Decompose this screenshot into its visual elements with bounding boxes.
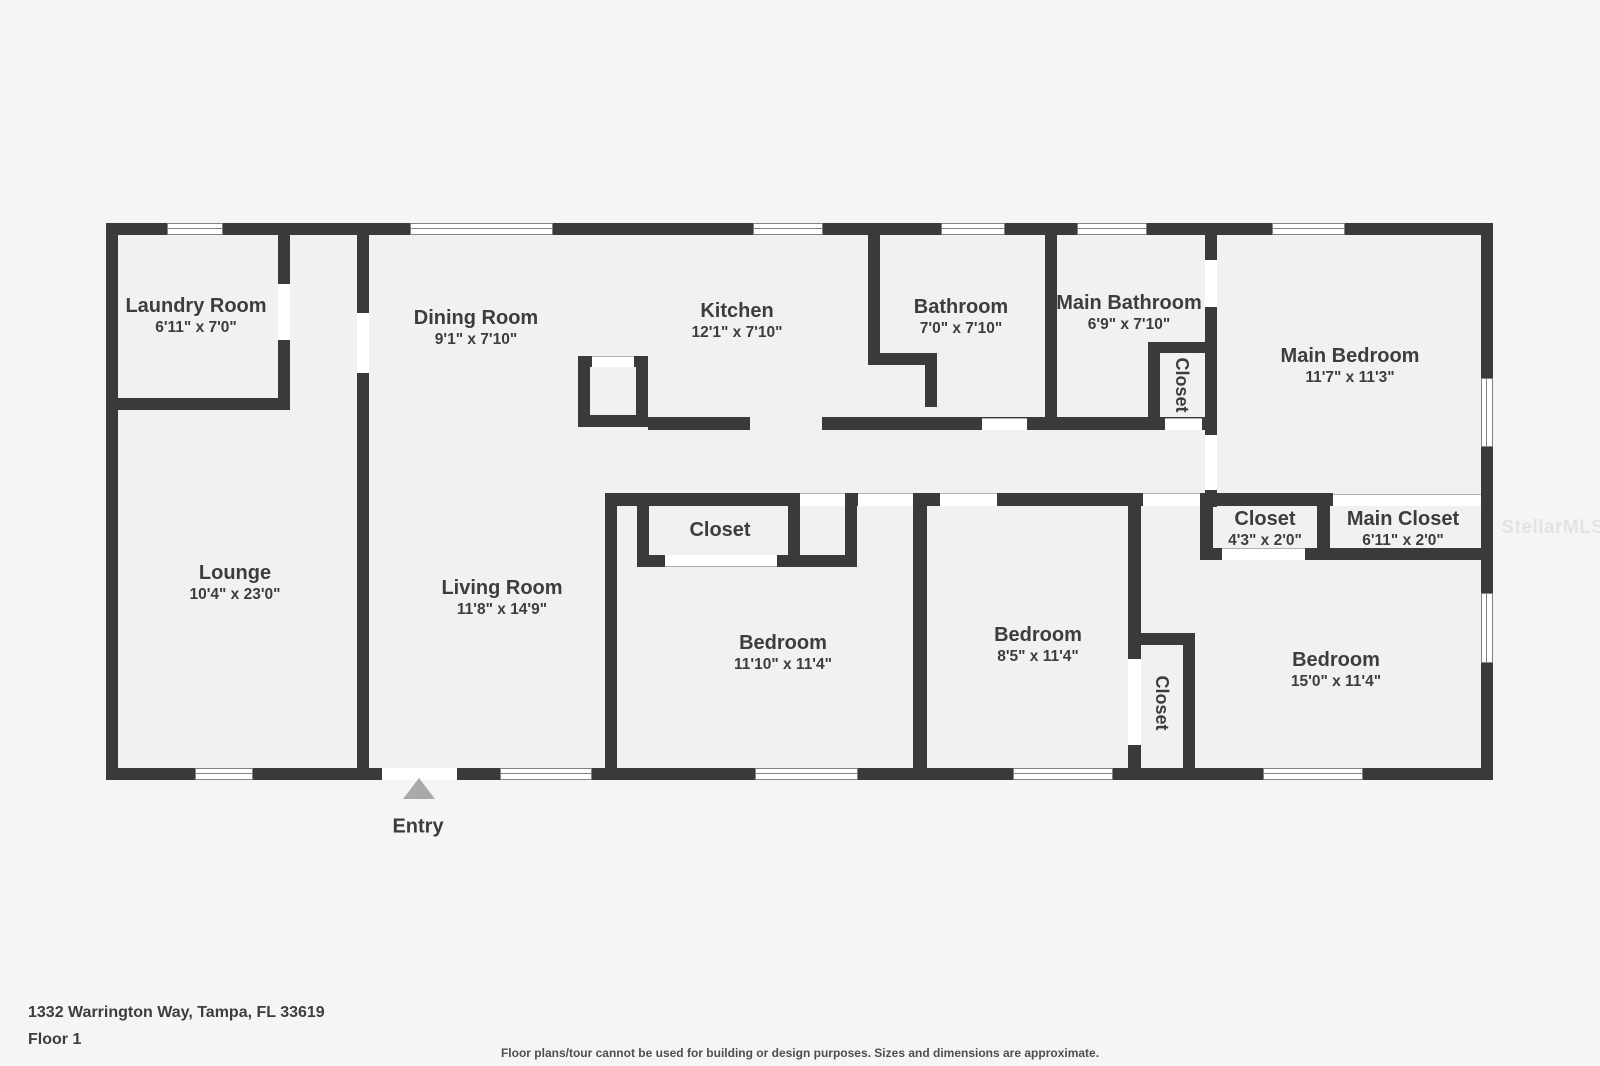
room-name: Main Closet <box>1347 507 1459 531</box>
window-icon <box>1077 223 1147 235</box>
room-label-bedroom1: Bedroom 11'10" x 11'4" <box>734 631 832 675</box>
wall <box>1148 342 1160 429</box>
room-label-lounge: Lounge 10'4" x 23'0" <box>189 561 280 605</box>
room-dims: 4'3" x 2'0" <box>1228 531 1302 551</box>
room-label-living-room: Living Room 11'8" x 14'9" <box>441 576 562 620</box>
room-label-bathroom: Bathroom 7'0" x 7'10" <box>914 295 1008 339</box>
entry-label: Entry <box>392 816 443 839</box>
room-label-closet-bedroom2: Closet <box>1150 675 1174 730</box>
door-opening <box>1205 435 1217 490</box>
wall <box>868 223 880 365</box>
window-icon <box>500 768 592 780</box>
room-dims: 15'0" x 11'4" <box>1291 672 1381 692</box>
door-opening <box>858 493 913 506</box>
room-name: Living Room <box>441 576 562 600</box>
room-name: Main Bathroom <box>1056 291 1202 315</box>
door-opening <box>1205 260 1217 307</box>
room-dims: 11'8" x 14'9" <box>441 600 562 620</box>
wall <box>925 353 937 407</box>
room-name: Main Bedroom <box>1281 344 1420 368</box>
wall <box>997 493 1143 506</box>
window-icon <box>753 223 823 235</box>
door-opening <box>278 284 290 340</box>
window-icon <box>1481 593 1493 663</box>
wall <box>822 417 868 430</box>
room-dims: 12'1" x 7'10" <box>691 323 782 343</box>
room-label-dining: Dining Room 9'1" x 7'10" <box>414 306 538 350</box>
door-opening <box>1165 418 1202 430</box>
room-dims: 7'0" x 7'10" <box>914 319 1008 339</box>
window-icon <box>410 223 553 235</box>
floor-number-label: Floor 1 <box>28 1031 81 1049</box>
room-name: Laundry Room <box>125 294 266 318</box>
room-label-bedroom3: Bedroom 15'0" x 11'4" <box>1291 648 1381 692</box>
room-name: Bedroom <box>994 623 1082 647</box>
window-icon <box>1013 768 1113 780</box>
room-label-laundry: Laundry Room 6'11" x 7'0" <box>125 294 266 338</box>
room-label-closet-main-bathroom: Closet <box>1170 357 1194 412</box>
room-name: Dining Room <box>414 306 538 330</box>
window-icon <box>941 223 1005 235</box>
room-name: Bedroom <box>1291 648 1381 672</box>
address-text: 1332 Warrington Way, Tampa, FL 33619 <box>28 1004 325 1022</box>
room-name: Bathroom <box>914 295 1008 319</box>
wall <box>845 493 857 567</box>
room-dims: 8'5" x 11'4" <box>994 647 1082 667</box>
wall <box>913 506 927 768</box>
room-dims: 11'10" x 11'4" <box>734 655 832 675</box>
room-dims: 10'4" x 23'0" <box>189 585 280 605</box>
wall <box>1183 633 1195 780</box>
wall <box>605 493 617 780</box>
room-label-main-closet: Main Closet 6'11" x 2'0" <box>1347 507 1459 551</box>
door-opening <box>592 356 634 367</box>
wall <box>106 398 290 410</box>
disclaimer-text: Floor plans/tour cannot be used for buil… <box>501 1046 1099 1060</box>
door-opening <box>1128 659 1141 745</box>
wall <box>1481 223 1493 780</box>
room-name: Closet <box>1150 675 1174 730</box>
door-opening <box>665 555 777 567</box>
room-label-closet-small: Closet 4'3" x 2'0" <box>1228 507 1302 551</box>
room-label-main-bedroom: Main Bedroom 11'7" x 11'3" <box>1281 344 1420 388</box>
wall <box>357 223 369 780</box>
room-dims: 9'1" x 7'10" <box>414 330 538 350</box>
room-dims: 6'9" x 7'10" <box>1056 315 1202 335</box>
window-icon <box>195 768 253 780</box>
door-opening <box>1143 493 1200 506</box>
room-dims: 6'11" x 7'0" <box>125 318 266 338</box>
room-name: Closet <box>689 518 750 542</box>
wall <box>578 415 648 427</box>
door-opening <box>357 313 369 373</box>
door-opening <box>800 493 845 506</box>
window-icon <box>167 223 223 235</box>
wall <box>605 493 800 506</box>
room-dims: 6'11" x 2'0" <box>1347 531 1459 551</box>
window-icon <box>1272 223 1345 235</box>
window-icon <box>755 768 858 780</box>
window-icon <box>1263 768 1363 780</box>
room-label-kitchen: Kitchen 12'1" x 7'10" <box>691 299 782 343</box>
floor-plan-page: Laundry Room 6'11" x 7'0" Dining Room 9'… <box>0 0 1600 1066</box>
wall <box>1045 223 1057 430</box>
window-icon <box>1481 378 1493 447</box>
watermark: StellarMLS <box>1501 517 1600 539</box>
room-name: Lounge <box>189 561 280 585</box>
wall <box>1200 493 1333 506</box>
room-label-main-bathroom: Main Bathroom 6'9" x 7'10" <box>1056 291 1202 335</box>
entry-arrow-icon <box>403 778 435 799</box>
room-name: Kitchen <box>691 299 782 323</box>
wall <box>648 417 750 430</box>
room-name: Bedroom <box>734 631 832 655</box>
door-opening <box>982 418 1027 430</box>
door-opening <box>1333 494 1481 506</box>
room-name: Closet <box>1170 357 1194 412</box>
door-opening <box>940 493 997 506</box>
wall <box>868 417 1057 430</box>
wall <box>106 223 118 780</box>
room-label-bedroom2: Bedroom 8'5" x 11'4" <box>994 623 1082 667</box>
room-label-closet-bedroom1: Closet <box>689 518 750 542</box>
room-name: Closet <box>1228 507 1302 531</box>
wall <box>913 493 940 506</box>
room-dims: 11'7" x 11'3" <box>1281 368 1420 388</box>
